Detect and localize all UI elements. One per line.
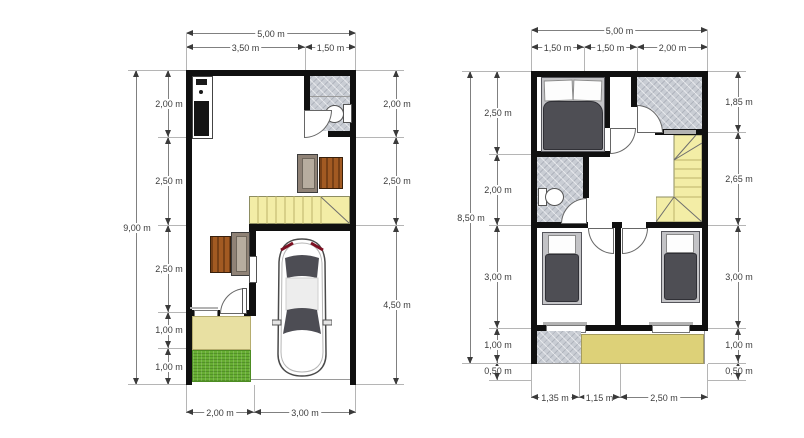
pillow: [544, 80, 574, 102]
master-bedroom-door: [610, 128, 636, 154]
duvet: [543, 101, 603, 150]
bedroom-door: [588, 228, 614, 254]
dim-total-width: 5,00 m: [531, 30, 708, 31]
dim-segment: 2,00 m: [637, 47, 708, 48]
bedroom-door: [622, 228, 648, 254]
dim-segment: 3,00 m: [497, 225, 498, 328]
hall-wall: [646, 222, 702, 228]
upper-floor-plan: 5,00 m 1,50 m 1,50 m 2,00 m 8,50 m 2,50 …: [0, 0, 804, 438]
dim-segment: 2,00 m: [497, 154, 498, 225]
extension-line: [708, 225, 746, 226]
dim-label: 1,85 m: [723, 97, 755, 107]
extension-line: [462, 71, 531, 72]
extension-line: [708, 363, 746, 364]
extension-line: [531, 364, 532, 397]
bathroom-wall: [583, 157, 589, 198]
floor-plans-canvas: 5,00 m 3,50 m 1,50 m 9,00 m 2,00 m 2,50 …: [0, 0, 804, 438]
dim-label: 8,50 m: [455, 213, 487, 223]
dim-label: 1,50 m: [542, 43, 574, 53]
dim-label: 3,00 m: [723, 272, 755, 282]
dim-segment: 1,00 m: [497, 328, 498, 362]
dim-label: 3,00 m: [482, 272, 514, 282]
rear-balcony-floor: [581, 334, 704, 364]
dim-segment: 2,50 m: [620, 397, 708, 398]
mattress: [664, 253, 697, 300]
dim-label: 1,35 m: [539, 393, 571, 403]
dim-label: 1,15 m: [584, 393, 616, 403]
dim-segment: 1,50 m: [584, 47, 637, 48]
dim-segment: 1,35 m: [531, 397, 579, 398]
dim-label: 2,50 m: [482, 108, 514, 118]
extension-line: [620, 364, 621, 397]
bedroom-divider-wall: [615, 228, 621, 331]
extension-line: [489, 225, 531, 226]
dim-segment: 1,15 m: [579, 397, 620, 398]
extension-line: [707, 30, 708, 71]
dim-segment: 1,00 m: [738, 328, 739, 362]
dim-segment: 3,00 m: [738, 225, 739, 328]
dim-segment: 2,50 m: [497, 71, 498, 154]
dim-label: 1,00 m: [482, 340, 514, 350]
dim-total-height: 8,50 m: [470, 71, 471, 364]
pillow: [573, 80, 603, 102]
dim-label: 1,00 m: [723, 340, 755, 350]
extension-line: [708, 380, 746, 381]
extension-line: [489, 154, 531, 155]
dim-label: 2,50 m: [648, 393, 680, 403]
dim-label: 2,00 m: [657, 43, 689, 53]
window-sill: [664, 130, 696, 134]
extension-line: [584, 47, 585, 71]
dim-segment: 1,85 m: [738, 71, 739, 132]
dim-label: 0,50 m: [482, 366, 514, 376]
extension-line: [707, 364, 708, 397]
extension-line: [489, 380, 531, 381]
rear-wall: [688, 325, 702, 331]
extension-line: [708, 328, 746, 329]
mattress: [545, 254, 579, 302]
extension-line: [489, 328, 531, 329]
dim-label: 5,00 m: [604, 26, 636, 36]
exterior-wall-right: [702, 71, 708, 331]
dim-segment: 2,65 m: [738, 132, 739, 225]
dim-label: 0,50 m: [723, 366, 755, 376]
dim-label: 2,00 m: [482, 185, 514, 195]
extension-line: [531, 30, 532, 71]
dim-segment: 0,50 m: [738, 362, 739, 380]
stairs: [656, 135, 702, 222]
dim-segment: 1,50 m: [531, 47, 584, 48]
extension-line: [579, 364, 580, 397]
toilet-bowl: [545, 188, 564, 206]
extension-line: [462, 363, 531, 364]
balcony-edge-line: [704, 331, 705, 364]
pillow: [666, 234, 694, 253]
rear-wall: [584, 325, 652, 331]
dim-segment: 0,50 m: [497, 362, 498, 380]
pillow: [548, 235, 576, 254]
dim-label: 2,65 m: [723, 174, 755, 184]
dim-label: 1,50 m: [595, 43, 627, 53]
extension-line: [708, 71, 746, 72]
extension-line: [708, 132, 746, 133]
window: [652, 325, 690, 333]
rear-balcony-tile: [537, 331, 581, 363]
extension-line: [637, 47, 638, 71]
